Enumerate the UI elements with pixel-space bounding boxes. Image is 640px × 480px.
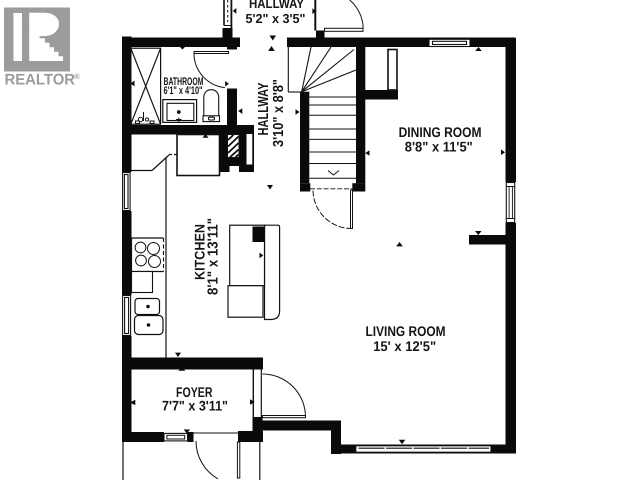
- svg-text:REALTOR: REALTOR: [5, 72, 76, 89]
- svg-text:HALLWAY: HALLWAY: [256, 82, 272, 135]
- svg-text:8'1" x 13'11": 8'1" x 13'11": [206, 218, 222, 295]
- svg-text:HALLWAY: HALLWAY: [249, 0, 304, 11]
- svg-text:8'8" x 11'5": 8'8" x 11'5": [405, 138, 473, 154]
- svg-text:15' x 12'5": 15' x 12'5": [373, 338, 436, 354]
- svg-text:®: ®: [74, 72, 80, 81]
- svg-text:5'2" x 3'5": 5'2" x 3'5": [246, 11, 306, 26]
- svg-text:LIVING ROOM: LIVING ROOM: [366, 323, 446, 339]
- svg-text:6'1" x 4'10": 6'1" x 4'10": [164, 85, 203, 97]
- svg-text:3'10" x 8'8": 3'10" x 8'8": [271, 79, 287, 147]
- svg-text:7'7" x 3'11": 7'7" x 3'11": [162, 398, 228, 414]
